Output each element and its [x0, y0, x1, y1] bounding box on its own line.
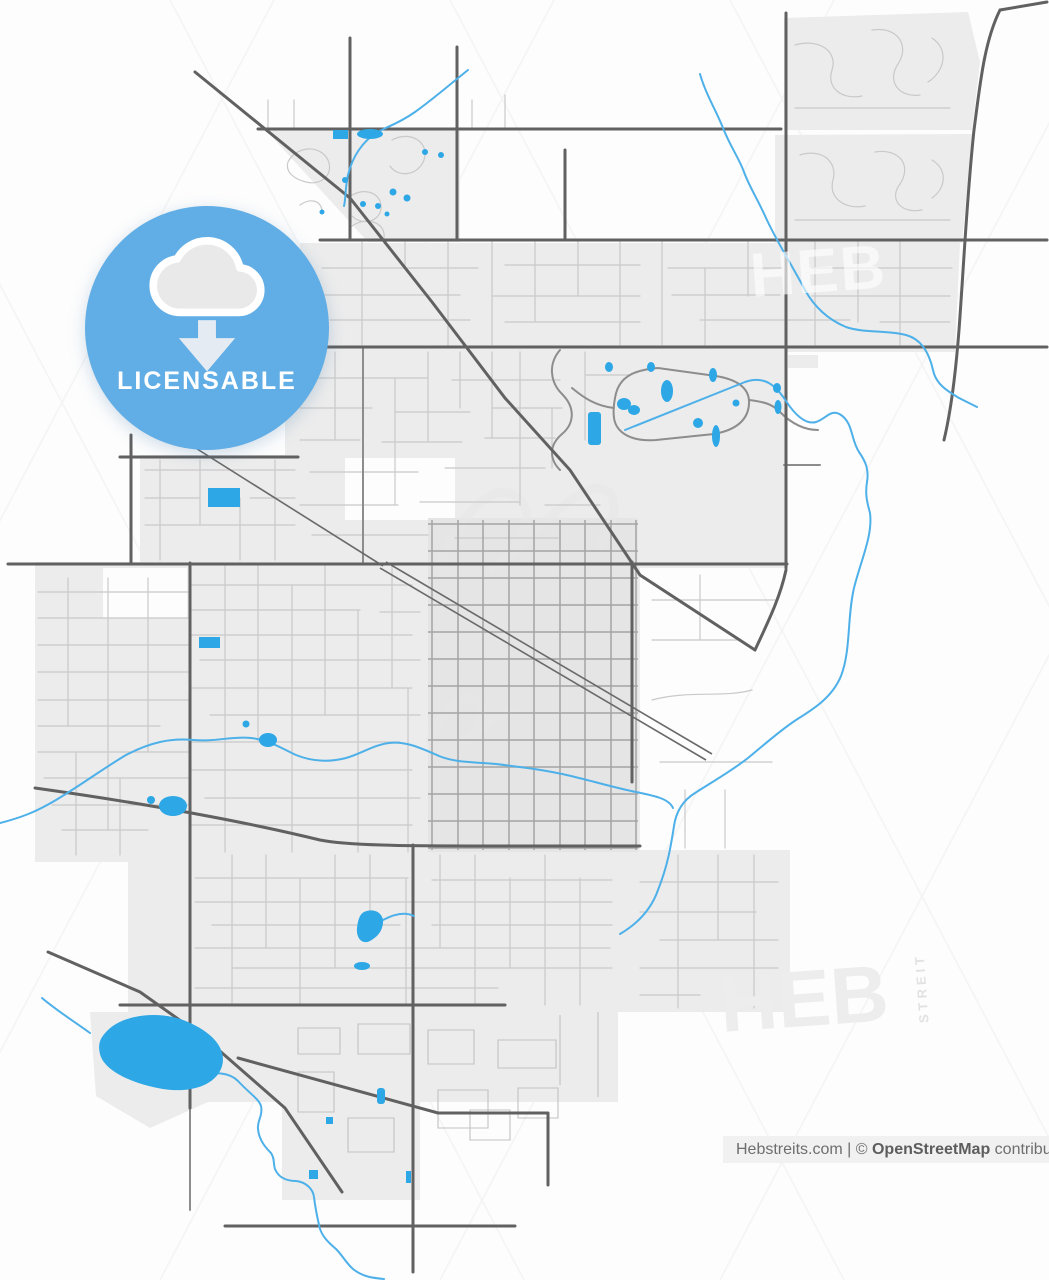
attribution-copyright: ©	[856, 1141, 872, 1159]
watermark-heb-text: HEB	[717, 948, 892, 1049]
attribution-source-link[interactable]: Hebstreits.com	[736, 1141, 843, 1159]
map-preview: HEB HEB STREIT LICENSABLE Hebstreits.com…	[0, 0, 1049, 1280]
licensable-badge[interactable]: LICENSABLE	[85, 206, 329, 450]
licensable-label: LICENSABLE	[85, 367, 329, 396]
download-arrow-icon	[179, 320, 235, 371]
watermark-heb-lockup: HEB STREIT	[717, 953, 923, 1057]
attribution-separator: |	[843, 1141, 856, 1159]
attribution-suffix: contributors	[990, 1141, 1049, 1159]
cloud-download-icon	[143, 202, 271, 382]
attribution-bar: Hebstreits.com | © OpenStreetMap contrib…	[723, 1136, 1049, 1163]
cloud-icon	[153, 241, 261, 313]
attribution-osm-link[interactable]: OpenStreetMap	[872, 1141, 990, 1159]
city-map	[0, 0, 1049, 1280]
watermark-heb-ghost: HEB	[748, 231, 890, 311]
